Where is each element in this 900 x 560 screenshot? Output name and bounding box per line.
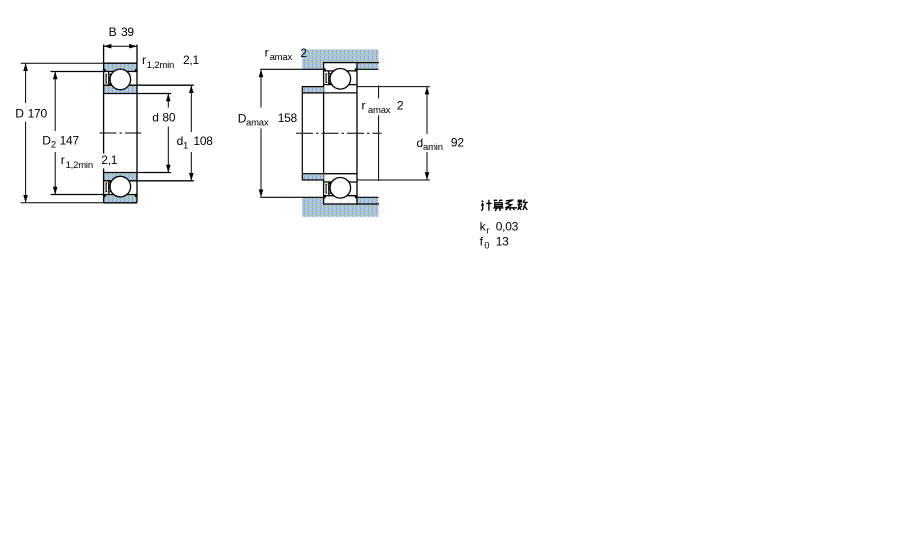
- svg-text:amax: amax: [270, 52, 293, 63]
- svg-text:170: 170: [28, 107, 48, 121]
- svg-text:147: 147: [60, 133, 80, 147]
- svg-text:r: r: [362, 98, 366, 112]
- svg-text:D: D: [15, 107, 24, 121]
- svg-text:amax: amax: [368, 105, 391, 116]
- svg-text:r: r: [486, 225, 489, 236]
- svg-text:r: r: [61, 153, 65, 167]
- svg-text:80: 80: [162, 111, 175, 125]
- svg-text:92: 92: [451, 135, 464, 149]
- svg-text:2,1: 2,1: [183, 53, 200, 67]
- svg-text:2: 2: [397, 99, 404, 113]
- svg-text:1,2min: 1,2min: [147, 60, 174, 71]
- svg-text:0,03: 0,03: [496, 220, 519, 234]
- svg-text:2: 2: [51, 140, 56, 151]
- svg-text:d: d: [152, 111, 158, 125]
- svg-text:13: 13: [496, 235, 509, 249]
- svg-text:amin: amin: [423, 142, 443, 153]
- svg-text:1: 1: [183, 140, 188, 151]
- svg-text:B: B: [109, 25, 117, 39]
- svg-text:1,2min: 1,2min: [66, 160, 93, 171]
- svg-text:2,1: 2,1: [101, 153, 118, 167]
- svg-text:39: 39: [121, 25, 134, 39]
- svg-text:r: r: [142, 53, 146, 67]
- svg-text:d: d: [417, 136, 423, 150]
- svg-text:2: 2: [300, 46, 307, 60]
- svg-text:0: 0: [484, 241, 489, 252]
- svg-text:amax: amax: [246, 117, 269, 128]
- svg-text:158: 158: [278, 111, 298, 125]
- svg-text:108: 108: [193, 134, 213, 148]
- svg-text:r: r: [265, 46, 269, 60]
